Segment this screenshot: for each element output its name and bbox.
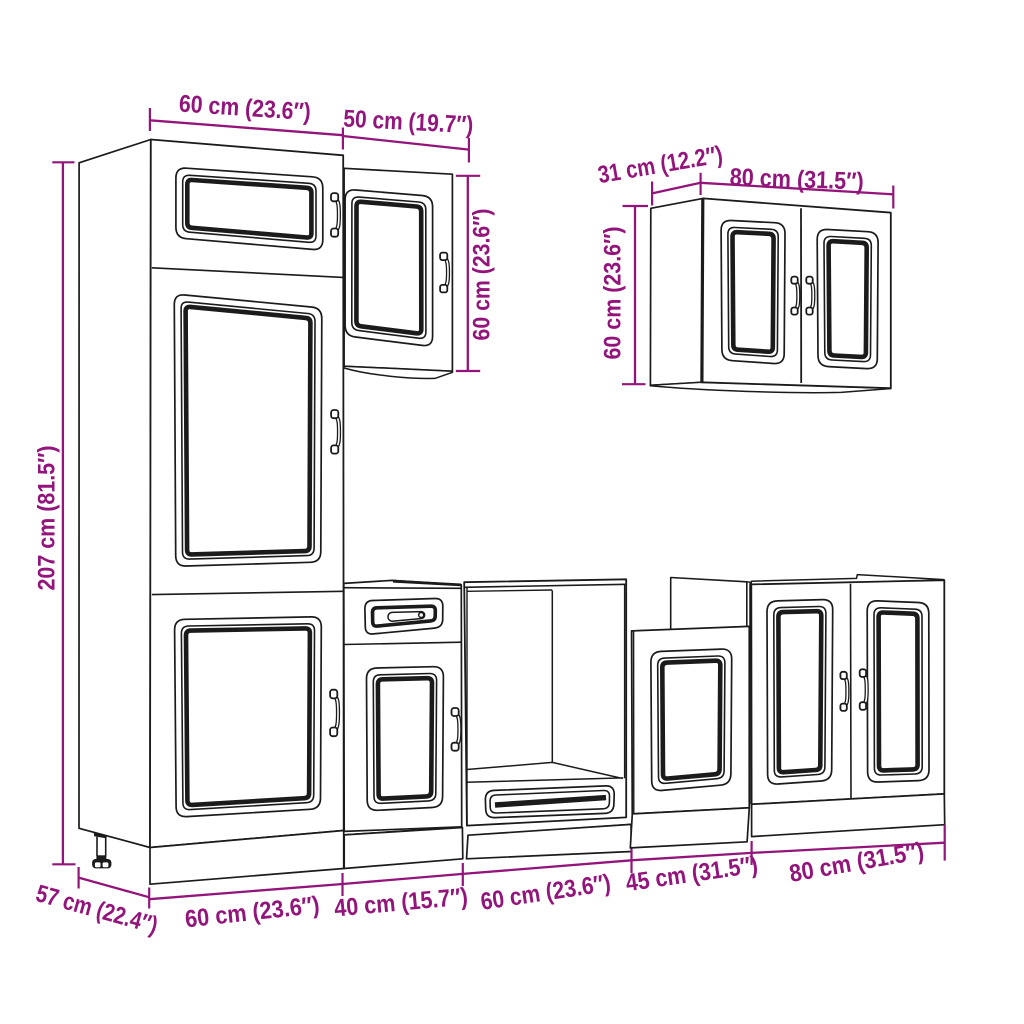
svg-text:207 cm (81.5″): 207 cm (81.5″) [34,446,61,591]
svg-text:60 cm (23.6″): 60 cm (23.6″) [600,227,627,360]
svg-text:60 cm (23.6″): 60 cm (23.6″) [469,209,496,341]
svg-text:80 cm (31.5″): 80 cm (31.5″) [729,164,864,196]
